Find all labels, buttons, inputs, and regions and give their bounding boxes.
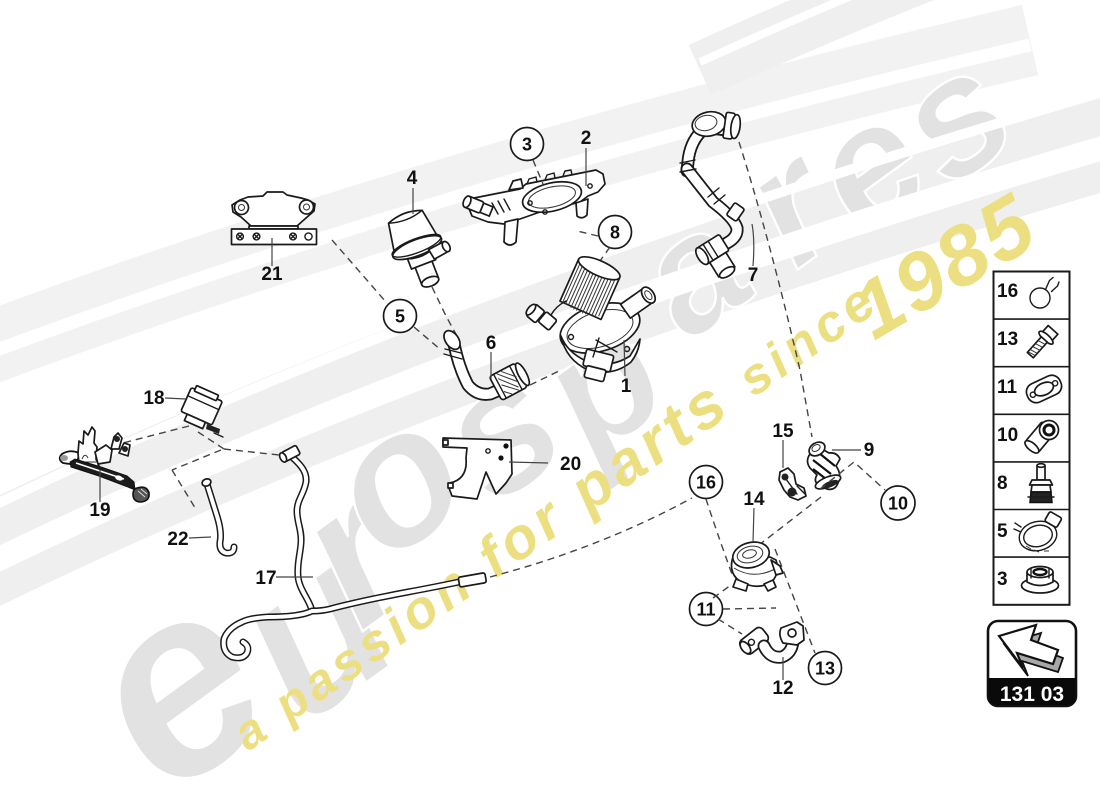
svg-text:16: 16 [696, 473, 716, 493]
svg-text:5: 5 [395, 307, 405, 327]
svg-text:8: 8 [997, 473, 1008, 494]
svg-text:4: 4 [407, 168, 418, 189]
svg-text:12: 12 [772, 678, 793, 699]
svg-text:10: 10 [997, 425, 1018, 446]
svg-text:11: 11 [997, 377, 1018, 398]
svg-text:2: 2 [581, 128, 592, 149]
svg-text:131 03: 131 03 [1000, 683, 1064, 706]
svg-text:15: 15 [772, 421, 794, 442]
svg-text:21: 21 [261, 264, 283, 285]
svg-text:13: 13 [815, 659, 835, 679]
svg-text:3: 3 [997, 569, 1008, 590]
svg-text:6: 6 [486, 333, 497, 354]
svg-text:16: 16 [997, 281, 1018, 302]
svg-text:19: 19 [89, 500, 110, 521]
svg-text:20: 20 [560, 454, 581, 475]
svg-text:17: 17 [255, 568, 276, 589]
svg-text:10: 10 [888, 494, 908, 514]
svg-text:1: 1 [621, 376, 632, 397]
svg-text:9: 9 [864, 440, 875, 461]
svg-text:8: 8 [610, 223, 620, 243]
svg-text:7: 7 [748, 265, 759, 286]
svg-text:3: 3 [522, 135, 532, 155]
svg-text:18: 18 [143, 388, 164, 409]
svg-text:22: 22 [167, 529, 188, 550]
svg-text:13: 13 [997, 329, 1018, 350]
svg-text:5: 5 [997, 521, 1008, 542]
svg-text:11: 11 [696, 600, 715, 620]
svg-text:14: 14 [743, 489, 765, 510]
